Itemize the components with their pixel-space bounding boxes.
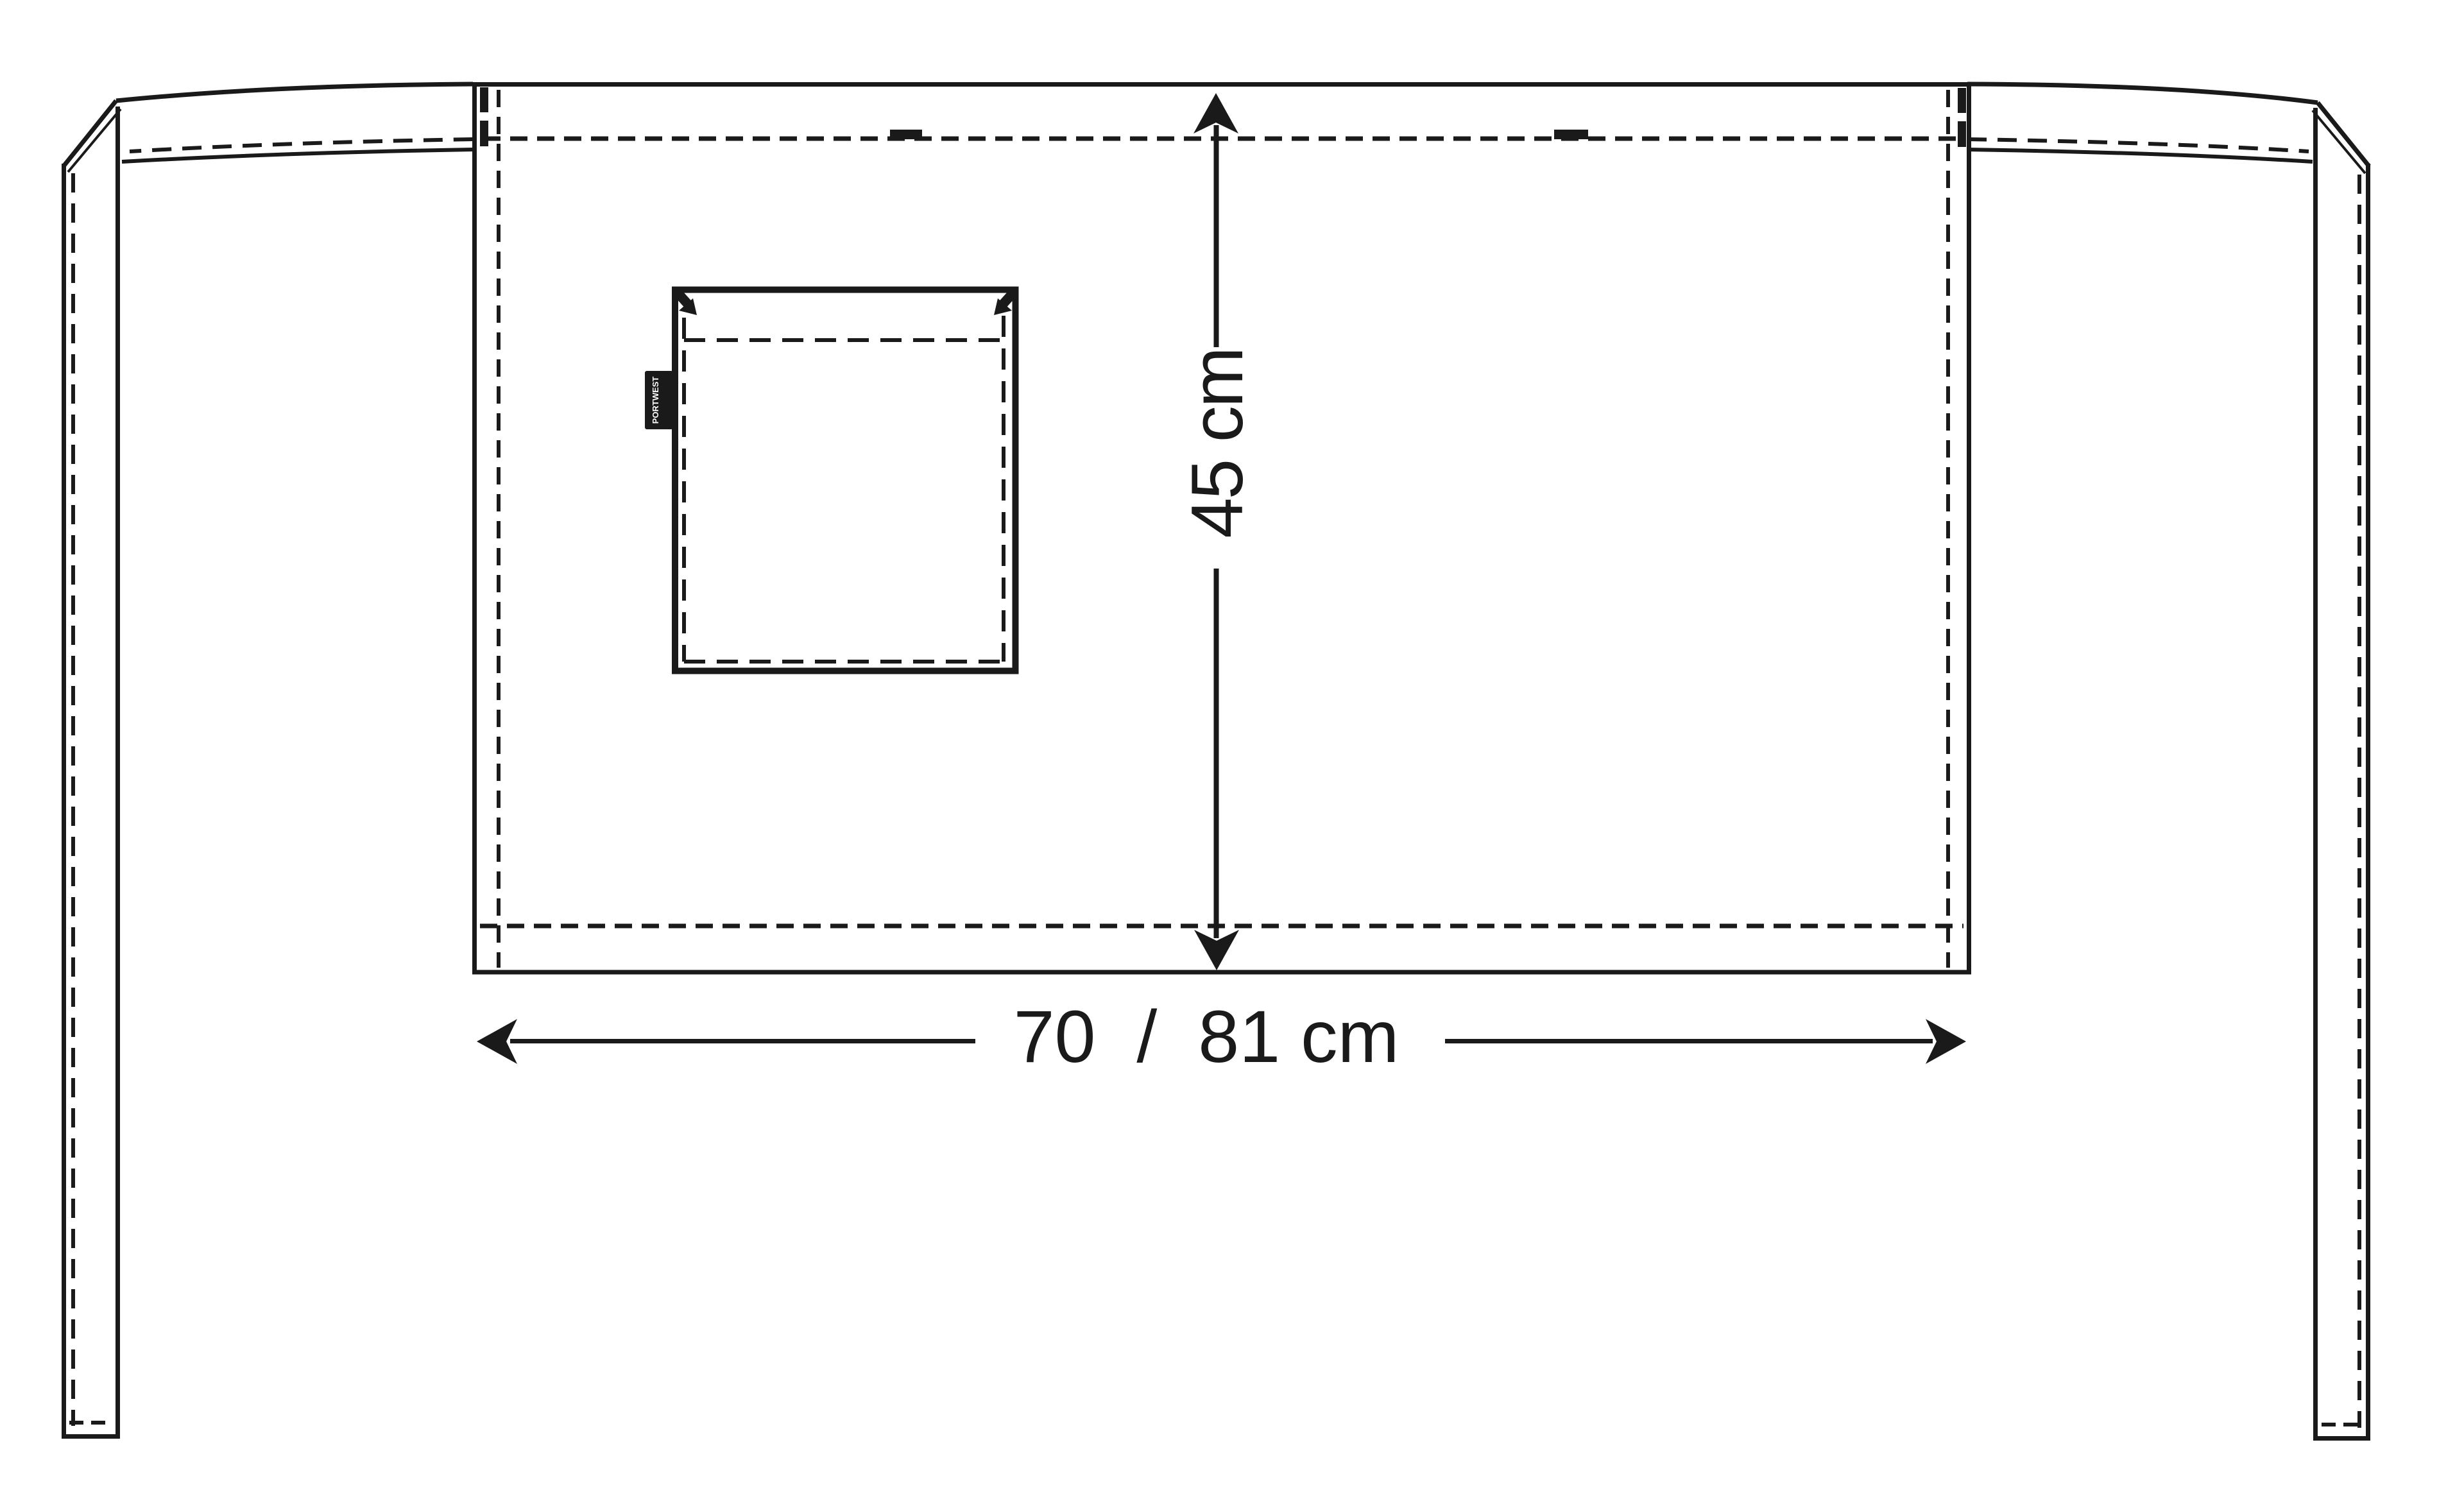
- svg-text:70 / 81 cm: 70 / 81 cm: [1014, 996, 1399, 1078]
- svg-text:PORTWEST: PORTWEST: [651, 377, 660, 424]
- svg-text:45 cm: 45 cm: [1177, 348, 1258, 538]
